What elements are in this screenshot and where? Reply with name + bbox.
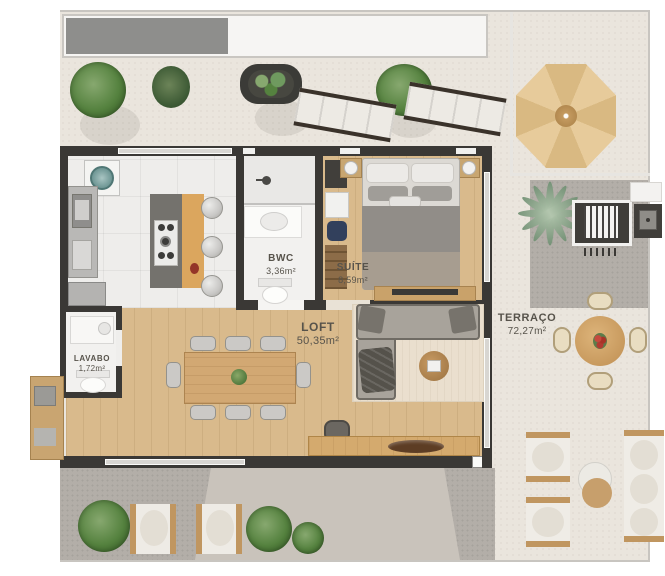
patio-chair (587, 372, 613, 390)
planter-gray-panel (66, 18, 228, 54)
potted-plant (70, 62, 126, 118)
dining-chair (190, 405, 216, 420)
dining-chair (296, 362, 311, 388)
kitchen-window (118, 148, 232, 154)
lavabo-wall-top (60, 306, 122, 312)
shaft-vent-ticks (584, 248, 618, 256)
pergola-frame-bottom (510, 173, 650, 176)
room-area: 72,27m² (487, 326, 567, 339)
boundary-line-bottom (60, 560, 650, 562)
lamp-right (462, 161, 476, 175)
grill-knob (646, 218, 650, 222)
dining-chair (190, 336, 216, 351)
wall-kitchen-bwc (236, 156, 244, 308)
bed-pillow-white-left (366, 163, 409, 183)
bar-stool-1 (201, 197, 223, 219)
burner-small-4 (167, 252, 174, 259)
bwc-basin (260, 212, 288, 231)
room-area: 3,36m² (246, 266, 316, 277)
shower-glass-line (244, 203, 315, 205)
lavabo-basin (98, 322, 111, 335)
lavabo-toilet-bowl (80, 377, 106, 393)
console-decor-bowl (388, 440, 444, 453)
suite-right-window (484, 172, 490, 282)
side-table-wood (582, 478, 612, 508)
suite-window-right (456, 148, 476, 154)
room-name: SUÍTE (337, 262, 369, 273)
room-area: 8,59m² (320, 275, 386, 286)
refrigerator (68, 282, 106, 306)
garden-bush (246, 506, 292, 552)
armchair-cushion (206, 510, 234, 546)
room-name: LOFT (301, 320, 335, 334)
loft-bottom-window (105, 459, 245, 465)
coffee-table-book (427, 360, 441, 372)
sofa-pillow-right (448, 305, 477, 334)
dining-chair (225, 336, 251, 351)
bed-pillow-white-right (411, 163, 454, 183)
suite-window-left (340, 148, 360, 154)
burner-small-3 (158, 252, 165, 259)
patio-chair (629, 327, 647, 353)
room-label-bwc: BWC 3,36m² (246, 253, 316, 277)
shower-arm (256, 179, 264, 181)
room-label-loft: LOFT 50,35m² (278, 320, 358, 349)
exterior-counter-sink (34, 386, 56, 406)
bar-stool-2 (201, 236, 223, 258)
dining-chair (166, 362, 181, 388)
counter-module (72, 240, 92, 270)
room-label-terraco: TERRAÇO 72,27m² (487, 312, 567, 338)
suite-desk (325, 192, 349, 218)
island-decor (190, 263, 199, 274)
patio-chair (587, 292, 613, 310)
armchair-cushion (140, 510, 168, 546)
potted-plant-tall (152, 66, 190, 108)
boundary-line-top (60, 10, 650, 12)
room-name: TERRAÇO (498, 312, 557, 324)
table-centerpiece-plant (231, 369, 247, 385)
exterior-counter-module (34, 428, 56, 446)
sofa-cushion (630, 474, 658, 504)
shaft-louver-panel (584, 206, 618, 238)
room-area: 1,72m² (60, 364, 124, 374)
garden-bush (292, 522, 324, 554)
dining-chair (225, 405, 251, 420)
sofa-cushion (630, 508, 658, 536)
bwc-window (243, 148, 255, 154)
loft-terrace-door[interactable] (484, 338, 490, 448)
bwc-toilet-bowl (262, 286, 288, 304)
room-label-lavabo: LAVABO 1,72m² (60, 354, 124, 374)
suite-tv (392, 289, 458, 295)
table-flower-vase (593, 333, 607, 349)
burner-large (160, 236, 171, 247)
lamp-left (344, 161, 358, 175)
bar-stool-3 (201, 275, 223, 297)
armchair-cushion (532, 507, 564, 537)
suite-desk-chair (327, 221, 347, 241)
sofa-throw-blanket (358, 346, 396, 393)
planter-bowl-succulents (248, 70, 294, 98)
shower-area (244, 156, 315, 204)
bed-blanket (362, 206, 460, 252)
floor-plan: BWC 3,36m² SUÍTE 8,59m² LOFT 50,35m² TER… (0, 0, 665, 576)
room-name: BWC (268, 253, 294, 264)
burner-small-2 (167, 224, 174, 231)
pergola-frame-left (510, 12, 513, 176)
room-area: 50,35m² (278, 335, 358, 349)
kitchen-sink-basin (75, 200, 89, 220)
dining-chair (260, 405, 286, 420)
wall-left (60, 146, 68, 306)
room-name: LAVABO (74, 354, 110, 363)
sofa-pillow-left (357, 305, 386, 334)
grill-counter-top-panel (630, 182, 662, 202)
umbrella-hub (555, 105, 577, 127)
burner-small-1 (158, 224, 165, 231)
room-label-suite: SUÍTE 8,59m² (320, 262, 386, 286)
garden-bush (78, 500, 130, 552)
sofa-cushion (630, 440, 658, 470)
armchair-cushion (532, 442, 564, 472)
